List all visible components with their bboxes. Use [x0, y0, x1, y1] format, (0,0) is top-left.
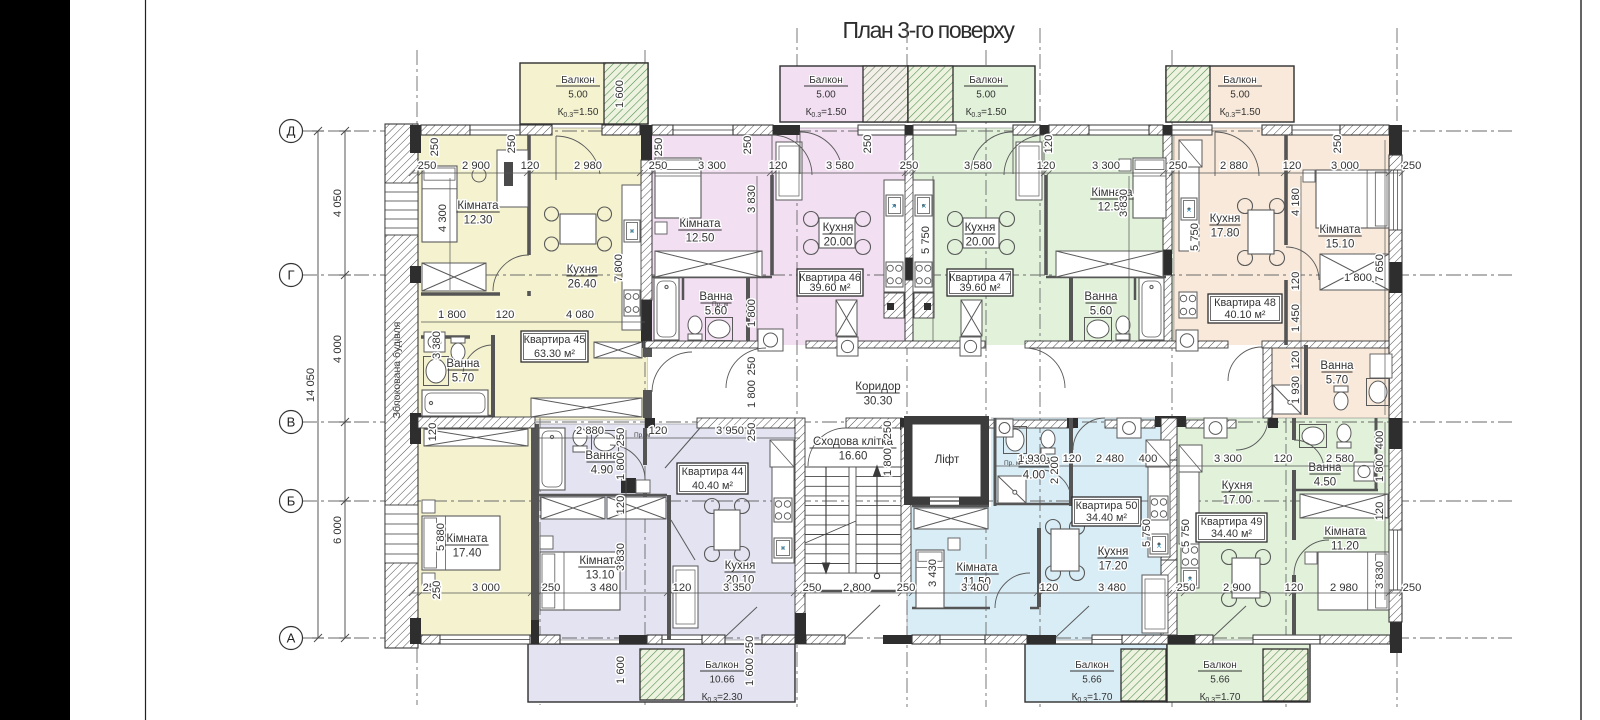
- svg-text:26.40: 26.40: [568, 279, 597, 291]
- svg-text:Кухня: Кухня: [567, 264, 598, 276]
- svg-text:7 800: 7 800: [613, 254, 625, 282]
- svg-text:5.66: 5.66: [1210, 675, 1230, 686]
- svg-text:17.80: 17.80: [1211, 228, 1240, 240]
- svg-text:5.00: 5.00: [976, 90, 996, 101]
- svg-text:17.20: 17.20: [1099, 561, 1128, 573]
- svg-text:11.20: 11.20: [1331, 541, 1359, 553]
- svg-text:Ванна: Ванна: [1084, 291, 1118, 303]
- svg-text:34.40 м²: 34.40 м²: [1211, 528, 1252, 540]
- svg-text:Зблокована будівля: Зблокована будівля: [391, 322, 403, 419]
- svg-text:17.40: 17.40: [453, 548, 482, 560]
- svg-text:2 900: 2 900: [1223, 582, 1251, 594]
- svg-text:×: ×: [780, 543, 785, 553]
- svg-text:3 950: 3 950: [716, 425, 744, 437]
- svg-text:1 800: 1 800: [746, 299, 758, 327]
- svg-text:1 800: 1 800: [438, 309, 466, 321]
- svg-text:5 750: 5 750: [1141, 519, 1153, 547]
- svg-text:120: 120: [673, 582, 692, 594]
- svg-text:×: ×: [1187, 574, 1192, 584]
- svg-text:39.60 м²: 39.60 м²: [959, 282, 1000, 294]
- svg-text:4.00: 4.00: [1023, 470, 1045, 482]
- svg-text:3 300: 3 300: [1214, 453, 1242, 465]
- svg-text:2 580: 2 580: [1326, 453, 1354, 465]
- svg-text:Балкон: Балкон: [1075, 660, 1109, 671]
- svg-text:20.00: 20.00: [966, 237, 995, 249]
- svg-text:120: 120: [1063, 453, 1082, 465]
- svg-text:400: 400: [1374, 431, 1386, 450]
- svg-text:1 800: 1 800: [746, 380, 758, 408]
- svg-text:12.30: 12.30: [464, 215, 493, 227]
- svg-text:Кімната: Кімната: [1319, 224, 1361, 236]
- svg-text:120: 120: [1037, 160, 1056, 172]
- svg-text:3 400: 3 400: [961, 582, 989, 594]
- svg-text:40.40 м²: 40.40 м²: [692, 480, 733, 492]
- svg-text:250: 250: [418, 160, 437, 172]
- svg-text:120: 120: [1283, 160, 1302, 172]
- svg-text:12.50: 12.50: [686, 233, 715, 245]
- svg-text:Пр. м: Пр. м: [712, 301, 729, 308]
- svg-text:Кімната: Кімната: [446, 533, 488, 545]
- svg-text:2 200: 2 200: [1049, 456, 1061, 484]
- svg-text:Балкон: Балкон: [1203, 660, 1237, 671]
- svg-text:250: 250: [862, 135, 874, 154]
- svg-text:1 800: 1 800: [615, 452, 627, 480]
- svg-text:250: 250: [897, 582, 916, 594]
- svg-text:Д: Д: [287, 124, 296, 139]
- svg-text:А: А: [287, 631, 296, 646]
- svg-text:3 300: 3 300: [1092, 160, 1120, 172]
- svg-text:План 3-го поверху: План 3-го поверху: [842, 17, 1015, 43]
- svg-text:63.30 м²: 63.30 м²: [534, 348, 575, 360]
- svg-text:3 430: 3 430: [927, 559, 939, 587]
- svg-text:250: 250: [649, 160, 668, 172]
- svg-text:3 830: 3 830: [1374, 561, 1386, 589]
- svg-text:5.00: 5.00: [816, 90, 836, 101]
- svg-text:5 750: 5 750: [1180, 519, 1192, 547]
- svg-text:3 380: 3 380: [431, 331, 443, 359]
- svg-text:1 800: 1 800: [1374, 454, 1386, 482]
- svg-text:250: 250: [653, 138, 665, 157]
- svg-text:120: 120: [1274, 453, 1293, 465]
- svg-text:10.66: 10.66: [709, 675, 734, 686]
- svg-text:120: 120: [1040, 582, 1059, 594]
- svg-text:120: 120: [1374, 502, 1386, 521]
- svg-text:Пр. м: Пр. м: [634, 432, 651, 439]
- svg-text:250: 250: [746, 423, 758, 442]
- svg-text:250: 250: [542, 582, 561, 594]
- svg-text:120: 120: [769, 160, 788, 172]
- svg-text:16.60: 16.60: [839, 451, 868, 463]
- svg-text:×: ×: [921, 201, 926, 211]
- svg-text:Кухня: Кухня: [1222, 480, 1253, 492]
- svg-text:120: 120: [649, 425, 668, 437]
- svg-text:4 000: 4 000: [332, 335, 344, 363]
- svg-text:3 830: 3 830: [1118, 189, 1130, 217]
- svg-text:Кімната: Кімната: [679, 218, 721, 230]
- svg-text:1 600: 1 600: [614, 80, 626, 108]
- svg-text:250: 250: [742, 136, 754, 155]
- svg-text:Г: Г: [287, 268, 294, 283]
- svg-text:Балкон: Балкон: [969, 75, 1003, 86]
- svg-text:Балкон: Балкон: [1223, 75, 1257, 86]
- svg-text:5.60: 5.60: [1090, 306, 1112, 318]
- svg-text:5.70: 5.70: [1326, 375, 1348, 387]
- svg-text:×: ×: [629, 226, 634, 236]
- svg-text:120: 120: [615, 496, 627, 515]
- svg-text:1 600: 1 600: [744, 658, 756, 686]
- svg-text:7 650: 7 650: [1374, 254, 1386, 282]
- svg-text:3 830: 3 830: [615, 543, 627, 571]
- svg-text:5.00: 5.00: [1230, 90, 1250, 101]
- svg-text:17.00: 17.00: [1223, 495, 1252, 507]
- svg-text:Балкон: Балкон: [809, 75, 843, 86]
- svg-text:4 180: 4 180: [1290, 188, 1302, 216]
- svg-text:3 580: 3 580: [826, 160, 854, 172]
- svg-text:1 800: 1 800: [1344, 272, 1372, 284]
- svg-text:1 930: 1 930: [1018, 453, 1046, 465]
- svg-text:250: 250: [615, 428, 627, 447]
- svg-text:3 350: 3 350: [723, 582, 751, 594]
- svg-text:В: В: [287, 415, 296, 430]
- svg-text:120: 120: [1290, 272, 1302, 291]
- svg-text:5.00: 5.00: [568, 90, 588, 101]
- svg-text:4.50: 4.50: [1314, 477, 1336, 489]
- svg-text:250: 250: [506, 135, 518, 154]
- svg-text:Б: Б: [287, 494, 296, 509]
- svg-text:3 480: 3 480: [590, 582, 618, 594]
- svg-text:4 080: 4 080: [566, 309, 594, 321]
- svg-text:Коридор: Коридор: [855, 381, 900, 393]
- svg-text:2 900: 2 900: [462, 160, 490, 172]
- svg-text:40.10 м²: 40.10 м²: [1224, 309, 1265, 321]
- svg-text:15.10: 15.10: [1326, 239, 1355, 251]
- svg-text:×: ×: [1186, 205, 1191, 215]
- svg-text:Квартира 49: Квартира 49: [1201, 516, 1263, 528]
- svg-text:34.40 м²: 34.40 м²: [1086, 512, 1127, 524]
- svg-text:4 050: 4 050: [332, 189, 344, 217]
- svg-text:Ванна: Ванна: [446, 358, 480, 370]
- svg-text:3 580: 3 580: [964, 160, 992, 172]
- svg-text:5 750: 5 750: [1189, 223, 1201, 251]
- svg-text:Кімната: Кімната: [956, 562, 998, 574]
- svg-text:Квартира 48: Квартира 48: [1214, 297, 1276, 309]
- svg-text:Кухня: Кухня: [823, 222, 854, 234]
- svg-text:Пр. м: Пр. м: [1004, 460, 1021, 467]
- svg-text:250: 250: [1403, 582, 1422, 594]
- svg-text:Кухня: Кухня: [1098, 546, 1129, 558]
- svg-text:Кімната: Кімната: [1324, 526, 1366, 538]
- svg-text:120: 120: [521, 160, 540, 172]
- svg-text:2 980: 2 980: [574, 160, 602, 172]
- svg-text:2 480: 2 480: [1096, 453, 1124, 465]
- svg-text:2 800: 2 800: [843, 582, 871, 594]
- svg-text:5.70: 5.70: [452, 373, 474, 385]
- svg-text:1 600: 1 600: [615, 656, 627, 684]
- svg-text:Квартира 50: Квартира 50: [1076, 500, 1138, 512]
- svg-text:13.10: 13.10: [586, 570, 615, 582]
- svg-text:×: ×: [1156, 541, 1161, 551]
- svg-text:250: 250: [746, 357, 758, 376]
- svg-text:1 450: 1 450: [1290, 304, 1302, 332]
- svg-text:120: 120: [496, 309, 515, 321]
- svg-text:400: 400: [1139, 453, 1158, 465]
- svg-text:Балкон: Балкон: [705, 660, 739, 671]
- svg-text:Квартира 44: Квартира 44: [682, 466, 744, 478]
- svg-text:39.60 м²: 39.60 м²: [809, 282, 850, 294]
- svg-text:3 000: 3 000: [1331, 160, 1359, 172]
- svg-text:3 480: 3 480: [1098, 582, 1126, 594]
- svg-text:5 880: 5 880: [435, 523, 447, 551]
- svg-text:Ванна: Ванна: [1320, 360, 1354, 372]
- svg-text:3 000: 3 000: [472, 582, 500, 594]
- svg-text:250: 250: [882, 421, 894, 440]
- svg-text:×: ×: [891, 201, 896, 211]
- svg-text:Кімната: Кімната: [457, 200, 499, 212]
- svg-text:120: 120: [1290, 351, 1302, 370]
- svg-text:120: 120: [1285, 582, 1304, 594]
- svg-text:Ліфт: Ліфт: [935, 454, 960, 466]
- svg-text:250: 250: [1169, 160, 1188, 172]
- svg-text:4 300: 4 300: [437, 204, 449, 232]
- svg-text:250: 250: [429, 138, 441, 157]
- svg-text:250: 250: [900, 160, 919, 172]
- svg-text:Кухня: Кухня: [1210, 213, 1241, 225]
- svg-text:2 980: 2 980: [1330, 582, 1358, 594]
- svg-text:20.00: 20.00: [824, 237, 853, 249]
- svg-text:14 050: 14 050: [305, 368, 317, 402]
- svg-text:5.66: 5.66: [1082, 675, 1102, 686]
- svg-text:3 300: 3 300: [698, 160, 726, 172]
- svg-text:250: 250: [803, 582, 822, 594]
- svg-text:1 930: 1 930: [1290, 376, 1302, 404]
- svg-text:2 880: 2 880: [576, 425, 604, 437]
- svg-text:Квартира 45: Квартира 45: [524, 334, 586, 346]
- svg-text:4.90: 4.90: [591, 465, 613, 477]
- svg-text:6 000: 6 000: [332, 516, 344, 544]
- svg-text:120: 120: [427, 423, 439, 442]
- svg-text:Кухня: Кухня: [965, 222, 996, 234]
- svg-text:250: 250: [431, 581, 443, 600]
- svg-text:5 750: 5 750: [920, 226, 932, 254]
- svg-text:Кухня: Кухня: [725, 560, 756, 572]
- svg-text:30.30: 30.30: [864, 396, 893, 408]
- svg-text:1 800: 1 800: [882, 448, 894, 476]
- svg-text:120: 120: [1043, 135, 1055, 154]
- svg-text:250: 250: [1332, 135, 1344, 154]
- svg-text:250: 250: [1403, 160, 1422, 172]
- svg-text:2 880: 2 880: [1220, 160, 1248, 172]
- svg-text:250: 250: [744, 636, 756, 655]
- svg-text:3 830: 3 830: [746, 185, 758, 213]
- svg-text:Балкон: Балкон: [561, 75, 595, 86]
